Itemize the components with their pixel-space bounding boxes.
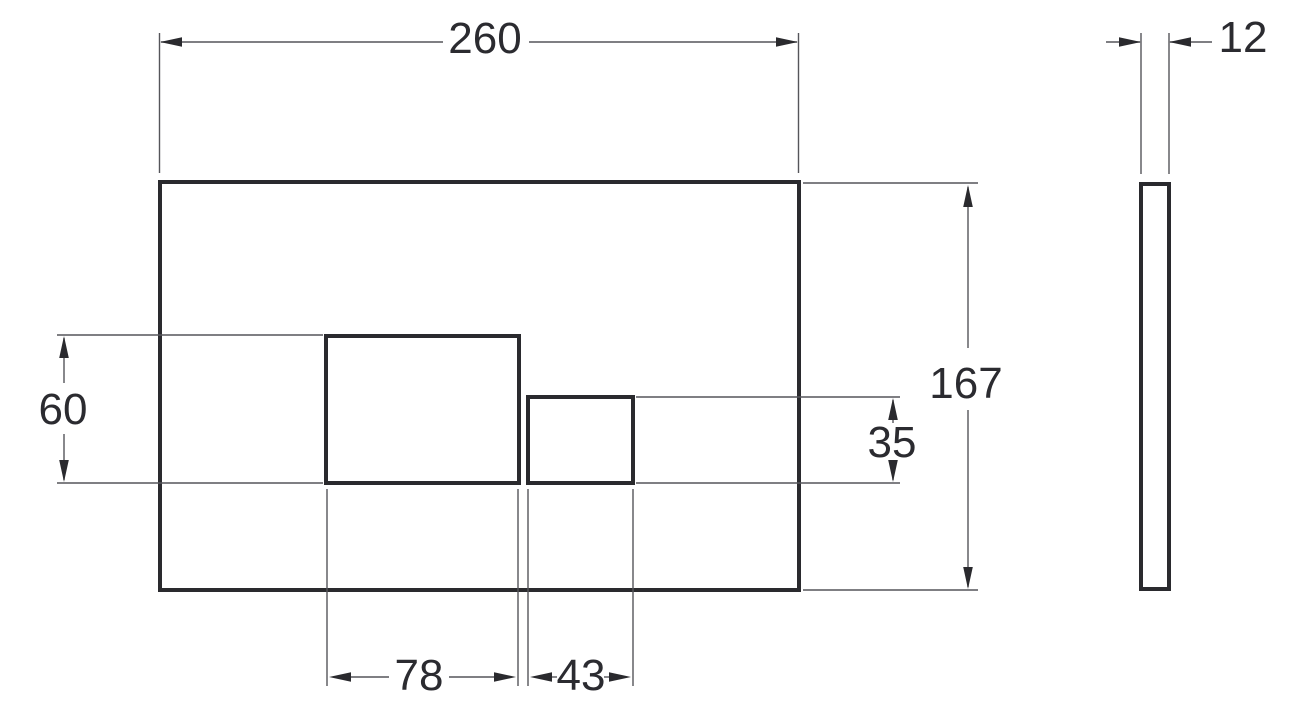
dim-plate-width-label: 260: [448, 14, 521, 63]
dim-plate-height: 167: [803, 183, 1003, 590]
dim-plate-thickness-label: 12: [1219, 13, 1268, 62]
large-button-outline: [326, 336, 519, 483]
arrowhead-left-icon: [530, 672, 552, 682]
arrowhead-right-icon: [609, 672, 631, 682]
dim-large-button-width: 78: [327, 489, 518, 700]
dim-small-button-width: 43: [528, 489, 633, 700]
arrowhead-up-icon: [963, 185, 973, 207]
arrowhead-down-icon: [59, 460, 69, 482]
dim-large-button-height-label: 60: [39, 385, 88, 434]
dim-plate-thickness: 12: [1106, 13, 1267, 174]
dim-large-button-width-label: 78: [395, 651, 444, 700]
dim-plate-height-label: 167: [929, 359, 1002, 408]
dim-small-button-width-label: 43: [557, 651, 606, 700]
arrowhead-down-icon: [963, 567, 973, 589]
front-view: [160, 182, 799, 590]
dim-plate-width: 260: [160, 14, 799, 173]
technical-drawing-canvas: 260 12 167 60 35: [0, 0, 1300, 708]
side-view: [1141, 184, 1169, 589]
arrowhead-right-icon: [776, 37, 798, 47]
arrowhead-right-icon: [1119, 37, 1141, 47]
arrowhead-left-icon: [1169, 37, 1191, 47]
dim-small-button-height-label: 35: [868, 418, 917, 467]
arrowhead-left-icon: [329, 672, 351, 682]
small-button-outline: [528, 397, 633, 483]
arrowhead-right-icon: [494, 672, 516, 682]
dim-small-button-height: 35: [636, 397, 916, 483]
arrowhead-up-icon: [888, 398, 898, 420]
front-view-outline: [160, 182, 799, 590]
dim-large-button-height: 60: [39, 335, 323, 483]
side-view-outline: [1141, 184, 1169, 589]
arrowhead-up-icon: [59, 336, 69, 358]
arrowhead-left-icon: [160, 37, 182, 47]
